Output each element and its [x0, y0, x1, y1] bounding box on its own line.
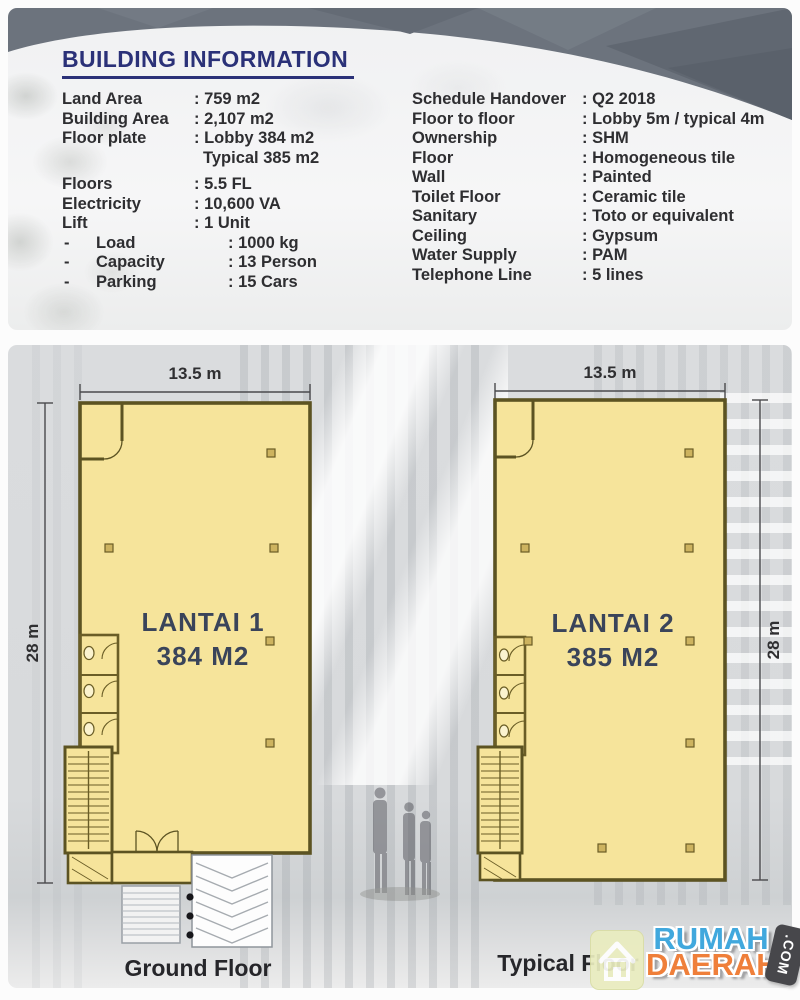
info-label: Toilet Floor — [412, 188, 582, 208]
info-label: Floor to floor — [412, 110, 582, 130]
bottom-utility-room — [68, 853, 112, 883]
info-label: Sanitary — [412, 207, 582, 227]
info-row: Floor : Homogeneous tile — [412, 149, 784, 169]
info-row: Floor plate : Lobby 384 m2 — [62, 129, 402, 149]
info-column-right: Schedule Handover : Q2 2018 Floor to flo… — [412, 90, 784, 285]
info-value: : Lobby 384 m2 — [194, 129, 314, 149]
info-row: Building Area : 2,107 m2 — [62, 110, 402, 130]
lobby-extension — [112, 852, 192, 883]
info-row: Floor to floor : Lobby 5m / typical 4m — [412, 110, 784, 130]
watermark-word-daerah: DAERAH — [646, 950, 776, 980]
info-label: Electricity — [62, 195, 194, 215]
ground-floor-plan: 13.5 m 28 m — [23, 364, 310, 981]
info-label: Water Supply — [412, 246, 582, 266]
info-row: Schedule Handover : Q2 2018 — [412, 90, 784, 110]
info-value: : Toto or equivalent — [582, 207, 734, 227]
watermark-wordmark: RUMAH DAERAH — [646, 924, 776, 980]
stairwell — [478, 747, 522, 853]
info-label: Ceiling — [412, 227, 582, 247]
info-label: Schedule Handover — [412, 90, 582, 110]
plan-title: LANTAI 1 — [141, 607, 264, 637]
info-value: : 759 m2 — [194, 90, 260, 110]
bottom-utility-room — [480, 853, 520, 880]
dash-bullet: - — [64, 273, 76, 293]
height-dimension-label: 28 m — [23, 624, 42, 663]
info-value: : 2,107 m2 — [194, 110, 274, 130]
info-row: - Parking : 15 Cars — [62, 273, 402, 293]
info-value: : 5 lines — [582, 266, 643, 286]
info-row: - Capacity : 13 Person — [62, 253, 402, 273]
building-info-panel: BUILDING INFORMATION Land Area : 759 m2 … — [8, 8, 792, 330]
info-value: : 10,600 VA — [194, 195, 281, 215]
dash-bullet: - — [64, 253, 76, 273]
info-row: Toilet Floor : Ceramic tile — [412, 188, 784, 208]
info-label: Floors — [62, 175, 194, 195]
info-value: : SHM — [582, 129, 629, 149]
page-title: BUILDING INFORMATION — [62, 46, 354, 79]
info-label: Ownership — [412, 129, 582, 149]
info-column-left: Land Area : 759 m2 Building Area : 2,107… — [62, 90, 402, 292]
info-label: Wall — [412, 168, 582, 188]
info-value: : 1000 kg — [228, 234, 299, 254]
info-value: : 5.5 FL — [194, 175, 252, 195]
height-dimension-label: 28 m — [764, 621, 783, 660]
info-row: Ownership : SHM — [412, 129, 784, 149]
info-label: Building Area — [62, 110, 194, 130]
info-row: Floors : 5.5 FL — [62, 175, 402, 195]
info-row: Wall : Painted — [412, 168, 784, 188]
floor-plans-panel: 13.5 m 28 m — [8, 345, 792, 988]
info-row: Lift : 1 Unit — [62, 214, 402, 234]
width-dimension-line — [80, 384, 310, 400]
info-value: : Q2 2018 — [582, 90, 655, 110]
info-row: - Load : 1000 kg — [62, 234, 402, 254]
info-value: : 13 Person — [228, 253, 317, 273]
people-silhouettes — [360, 788, 440, 902]
width-dimension-line — [495, 383, 725, 399]
dash-bullet: - — [64, 234, 76, 254]
info-value: : Ceramic tile — [582, 188, 686, 208]
info-value: : Homogeneous tile — [582, 149, 735, 169]
watermark-suffix: .COM — [774, 933, 799, 976]
info-value: : PAM — [582, 246, 628, 266]
info-row-continuation: Typical 385 m2 — [62, 149, 402, 169]
info-value: : Painted — [582, 168, 652, 188]
width-dimension-label: 13.5 m — [169, 364, 222, 383]
info-value: : 15 Cars — [228, 273, 298, 293]
info-row: Ceiling : Gypsum — [412, 227, 784, 247]
info-row: Sanitary : Toto or equivalent — [412, 207, 784, 227]
info-label: Load — [62, 234, 228, 254]
site-watermark: RUMAH DAERAH .COM — [590, 924, 800, 998]
info-label: Capacity — [62, 253, 228, 273]
info-label: Lift — [62, 214, 194, 234]
width-dimension-label: 13.5 m — [584, 363, 637, 382]
plan-caption: Ground Floor — [125, 955, 272, 981]
info-row: Telephone Line : 5 lines — [412, 266, 784, 286]
info-row: Land Area : 759 m2 — [62, 90, 402, 110]
entrance-ramp — [186, 855, 272, 947]
info-value: Typical 385 m2 — [194, 149, 319, 169]
info-row: Water Supply : PAM — [412, 246, 784, 266]
entrance-steps — [122, 886, 180, 943]
info-value: : 1 Unit — [194, 214, 250, 234]
plan-area: 384 M2 — [157, 641, 250, 671]
plan-title: LANTAI 2 — [551, 608, 674, 638]
info-label: Floor — [412, 149, 582, 169]
info-label: Telephone Line — [412, 266, 582, 286]
info-label: Parking — [62, 273, 228, 293]
info-label: Land Area — [62, 90, 194, 110]
plan-area: 385 M2 — [567, 642, 660, 672]
stairwell — [65, 747, 112, 853]
floor-plans-drawing: 13.5 m 28 m — [8, 345, 792, 988]
typical-floor-plan: 13.5 m 28 m — [478, 363, 783, 976]
info-value: : Gypsum — [582, 227, 658, 247]
info-label: Floor plate — [62, 129, 194, 149]
brochure-page: BUILDING INFORMATION Land Area : 759 m2 … — [0, 0, 800, 1000]
info-row: Electricity : 10,600 VA — [62, 195, 402, 215]
info-value: : Lobby 5m / typical 4m — [582, 110, 764, 130]
house-icon — [590, 930, 644, 990]
